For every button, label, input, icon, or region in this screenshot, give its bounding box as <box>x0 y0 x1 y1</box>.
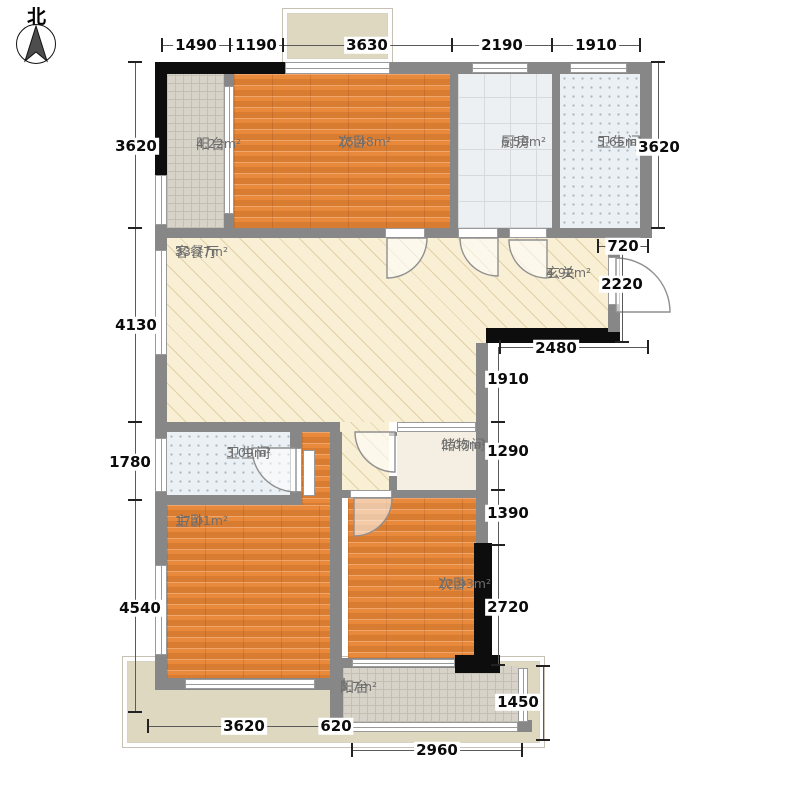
dim-right-1290: 1290 <box>485 443 531 460</box>
dim-right-1390: 1390 <box>485 505 531 522</box>
door-arc-storage <box>355 432 395 472</box>
dim-bottom-2960: 2960 <box>414 742 460 759</box>
floor-plan: 北 <box>0 0 800 800</box>
door-arcs <box>0 0 800 800</box>
dim-right-3620: 3620 <box>636 139 682 156</box>
dim-right-1450: 1450 <box>495 694 541 711</box>
dim-line-1450 <box>543 666 544 740</box>
dim-line-2220 <box>622 252 623 342</box>
dim-left-3620: 3620 <box>113 138 159 155</box>
dim-right-1910: 1910 <box>485 371 531 388</box>
door-arc-bath-top <box>509 240 547 278</box>
door-arc-bedroom-bottom <box>354 498 392 536</box>
dim-top-2190: 2190 <box>479 37 525 54</box>
dim-right-2480: 2480 <box>533 340 579 357</box>
door-arc-kitchen <box>460 238 498 276</box>
dim-right-2220: 2220 <box>599 276 645 293</box>
dim-top-1910: 1910 <box>573 37 619 54</box>
dim-left-4130: 4130 <box>113 317 159 334</box>
dim-top-1190: 1190 <box>233 37 279 54</box>
dim-top-3630: 3630 <box>344 37 390 54</box>
compass-circle <box>16 24 56 64</box>
door-arc-bedroom-top <box>387 238 427 278</box>
dim-left-1780: 1780 <box>107 454 153 471</box>
dim-right-720: 720 <box>605 238 640 255</box>
dim-right-2720: 2720 <box>485 599 531 616</box>
dim-bottom-3620: 3620 <box>221 718 267 735</box>
dim-bottom-620: 620 <box>318 718 353 735</box>
dim-left-4540: 4540 <box>117 600 163 617</box>
dim-top-1490: 1490 <box>173 37 219 54</box>
